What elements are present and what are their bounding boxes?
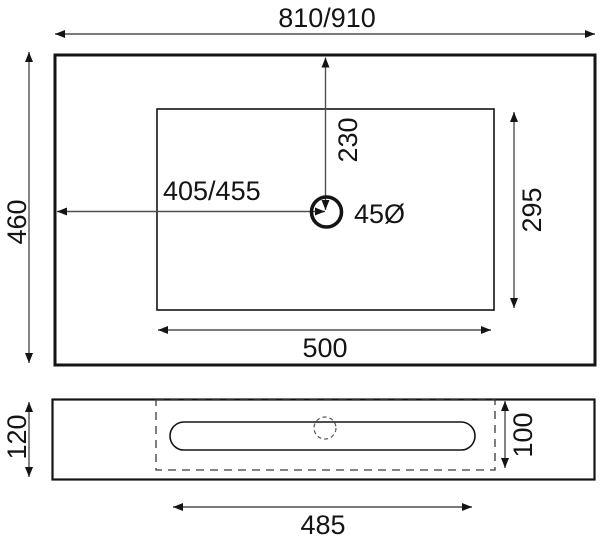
bowl-depth-label: 100 — [508, 412, 538, 457]
dimension-basin-width: 500 — [158, 330, 491, 363]
bowl-width-label: 485 — [300, 510, 345, 537]
dimension-overall-depth: 460 — [2, 52, 32, 363]
dimension-bowl-width: 485 — [173, 507, 472, 537]
drain-from-back-label: 230 — [333, 117, 363, 162]
dimension-front-height: 120 — [2, 402, 32, 477]
basin-depth-label: 295 — [517, 187, 547, 232]
dimension-bowl-depth: 100 — [505, 401, 538, 468]
overall-depth-label: 460 — [2, 199, 32, 244]
washbasin-dimension-drawing: 405/455 230 45Ø 810/910 460 295 500 — [0, 0, 600, 537]
slot-opening-outline — [170, 422, 475, 450]
basin-width-label: 500 — [302, 333, 347, 363]
bowl-hidden-outline — [156, 400, 495, 470]
dimension-overall-width: 810/910 — [55, 3, 595, 34]
drain-hidden-circle — [314, 417, 336, 439]
overall-width-label: 810/910 — [278, 3, 376, 33]
dimension-basin-depth: 295 — [514, 112, 547, 308]
drain-from-left-label: 405/455 — [163, 176, 261, 206]
drain-diameter-label: 45Ø — [354, 199, 405, 229]
technical-drawing-canvas: 405/455 230 45Ø 810/910 460 295 500 — [0, 0, 600, 537]
front-height-label: 120 — [2, 414, 32, 459]
